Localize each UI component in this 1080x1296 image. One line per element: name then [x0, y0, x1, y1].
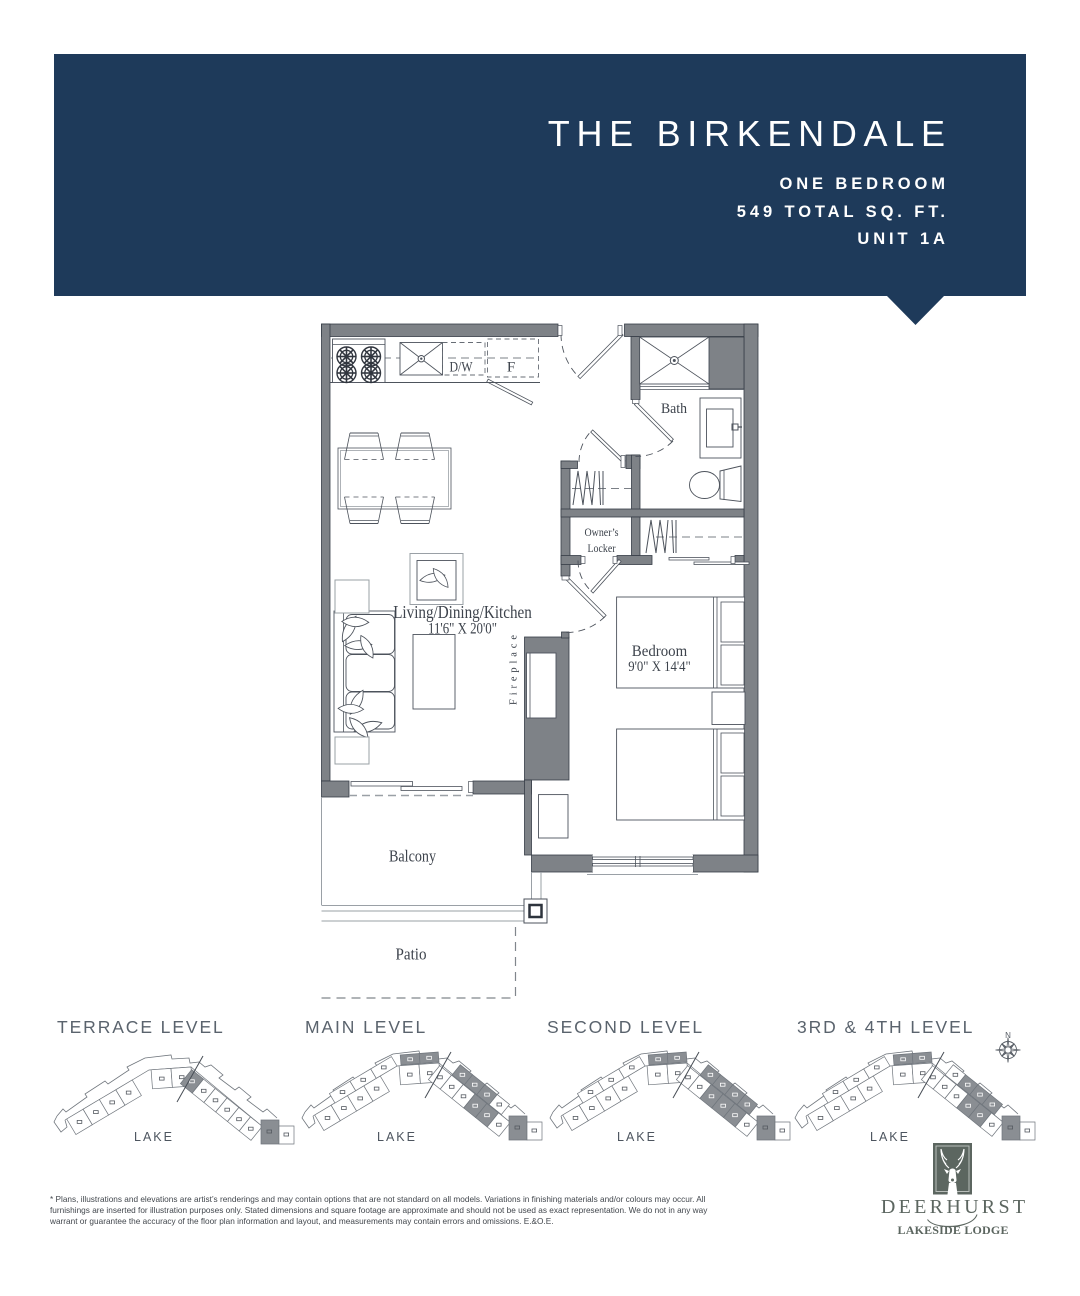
svg-text:Bath: Bath	[661, 401, 687, 417]
svg-text:11'6" X 20'0": 11'6" X 20'0"	[428, 621, 497, 638]
svg-text:Living/Dining/Kitchen: Living/Dining/Kitchen	[393, 602, 532, 622]
svg-text:N: N	[1005, 1031, 1011, 1040]
svg-text:Bedroom: Bedroom	[632, 643, 688, 660]
svg-text:Fireplace: Fireplace	[509, 635, 520, 705]
svg-text:F: F	[507, 360, 515, 376]
svg-text:Locker: Locker	[588, 541, 616, 555]
svg-text:Patio: Patio	[396, 945, 427, 964]
svg-text:D/W: D/W	[450, 360, 474, 376]
svg-text:Balcony: Balcony	[389, 847, 437, 866]
svg-text:Owner’s: Owner’s	[585, 525, 619, 539]
svg-text:9'0" X 14'4": 9'0" X 14'4"	[628, 659, 691, 675]
